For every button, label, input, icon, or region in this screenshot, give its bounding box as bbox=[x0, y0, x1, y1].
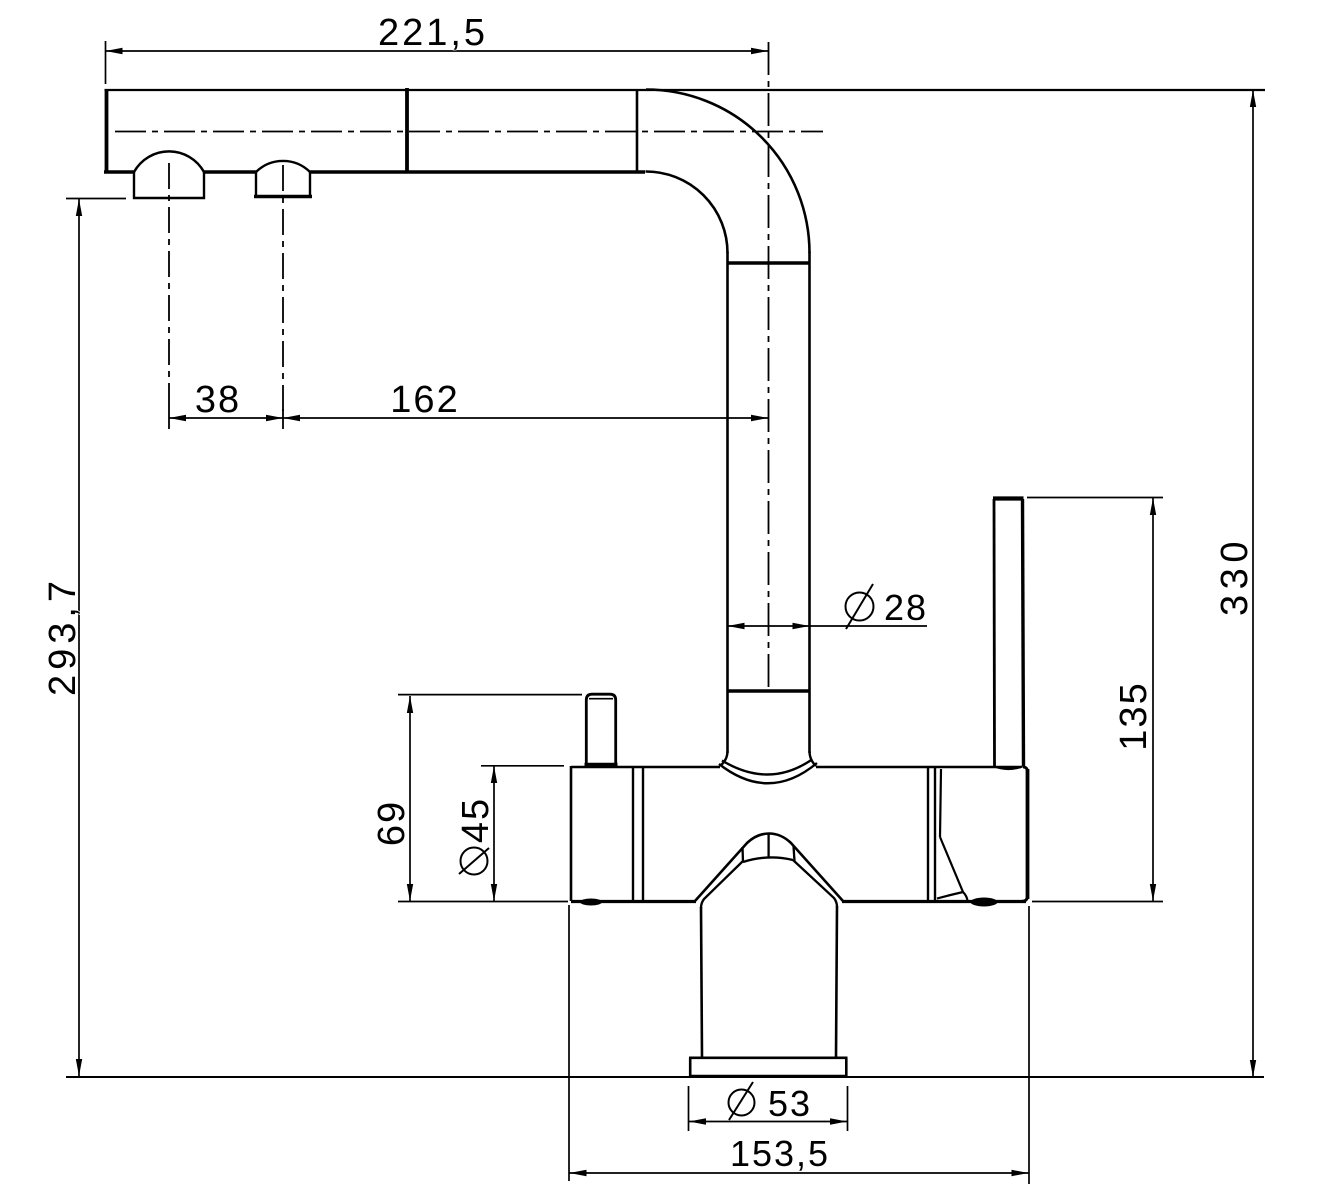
svg-text:38: 38 bbox=[195, 379, 241, 421]
svg-text:53: 53 bbox=[768, 1083, 812, 1124]
svg-text:153,5: 153,5 bbox=[730, 1133, 830, 1174]
svg-text:162: 162 bbox=[390, 379, 459, 421]
svg-text:293,7: 293,7 bbox=[42, 576, 84, 696]
svg-text:69: 69 bbox=[371, 800, 413, 846]
svg-text:330: 330 bbox=[1214, 536, 1256, 616]
svg-text:45: 45 bbox=[455, 797, 497, 843]
svg-text:221,5: 221,5 bbox=[378, 12, 488, 54]
svg-text:135: 135 bbox=[1113, 681, 1155, 750]
svg-text:28: 28 bbox=[884, 587, 928, 628]
